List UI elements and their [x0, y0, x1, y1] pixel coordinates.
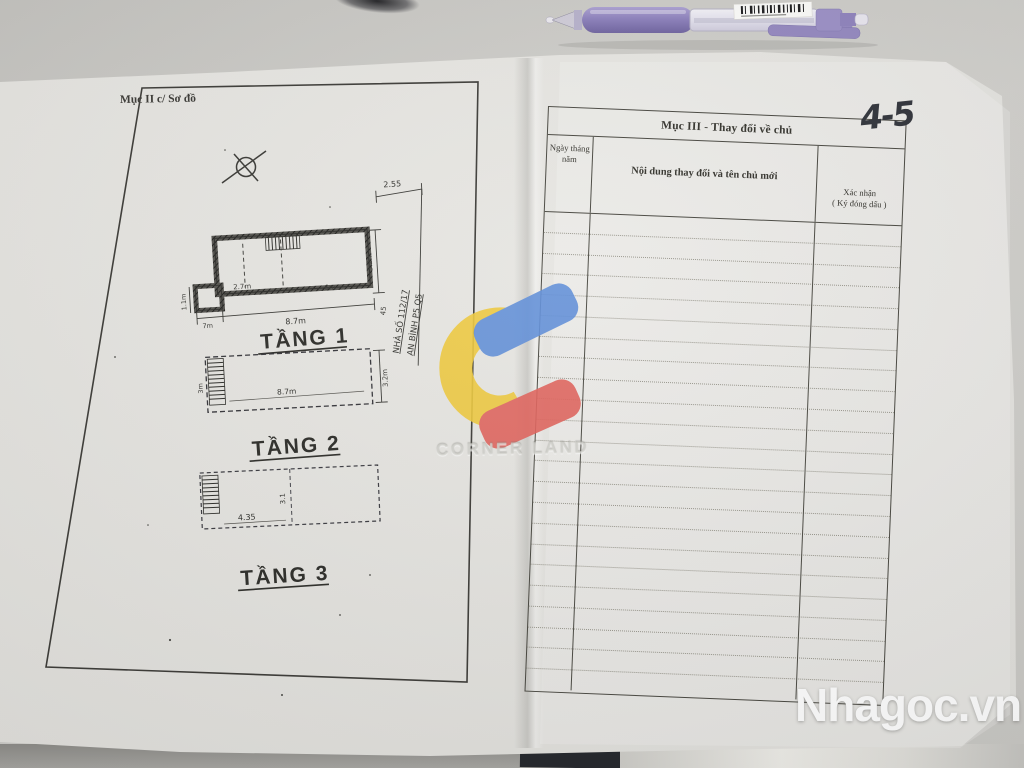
section-label: Mục II c/ Sơ đồ [120, 92, 196, 106]
floor2-title: TẦNG 2 [251, 432, 341, 461]
floor1-top-dim: 2.55 [383, 179, 401, 189]
pen-ring [574, 10, 582, 30]
pen-plunger [840, 13, 856, 26]
column-header-date-line1: Ngày tháng [547, 142, 592, 155]
column-header-confirm-line2: ( Ký đóng dấu ) [816, 197, 902, 212]
floor1-title: TẦNG 1 [260, 324, 351, 354]
floor1-offset-dim: 45 [379, 306, 388, 316]
floor2-stairs-icon [207, 358, 225, 405]
purple-pen [538, 0, 883, 54]
floor3-title: TẦNG 3 [240, 562, 330, 591]
floor2-width-dim: 8.7m [277, 387, 297, 397]
logo-blue-band [469, 282, 584, 362]
column-header-date: Ngày tháng năm [545, 135, 594, 213]
floor3-mid-dim: 3.1 [279, 493, 287, 504]
column-header-content: Nội dung thay đổi và tên chủ mới [591, 137, 818, 222]
floor1-room-right-dim: 6m [324, 283, 336, 292]
floor1-left-dim: 1.1m [180, 293, 189, 310]
floor2-left-dim: 3m [196, 383, 205, 394]
site-brand: Nhagoc.vn [795, 678, 1021, 732]
photo-of-document: Mục II c/ Sơ đồ [0, 0, 1024, 768]
pen-grip-highlight [590, 10, 686, 14]
floor3-stairs-icon [202, 475, 220, 514]
column-header-date-line2: năm [547, 153, 592, 166]
table-header-row: Ngày tháng năm Nội dung thay đổi và tên … [545, 135, 905, 226]
handwritten-page-number: 4-5 [858, 93, 915, 137]
pen-click-button [855, 14, 868, 25]
column-header-confirmation: Xác nhận ( Ký đóng dấu ) [815, 146, 905, 225]
floor1-right-dim: 3.2m [365, 253, 374, 272]
north-compass-icon [222, 151, 266, 183]
watermark-text: CORNER LAND [436, 437, 616, 460]
floor1-width-dim: 8.7m [285, 316, 306, 326]
floor3-width-dim: 4.35 [238, 513, 256, 523]
pen-shadow [558, 40, 878, 50]
pen-tip-cone [552, 11, 576, 29]
floor3-plan: 3.1 4.35 TẦNG 3 [200, 465, 383, 592]
floor1-notch-dim: 7m [202, 322, 213, 331]
dark-object-top-edge [321, 0, 434, 22]
floor2-plan: 3m 8.7m 3.2m TẦNG 2 [195, 348, 393, 464]
pen-barcode-label [734, 2, 812, 20]
left-page-border [46, 82, 478, 682]
floor1-plan: 2.7m 6m 7m 8.7m 1.1m 3.2m 45 2.55 [174, 178, 433, 379]
pen-end-cap [816, 9, 842, 31]
floor2-right-dim: 3.2m [381, 369, 390, 388]
floor1-room-left-dim: 2.7m [233, 282, 252, 291]
